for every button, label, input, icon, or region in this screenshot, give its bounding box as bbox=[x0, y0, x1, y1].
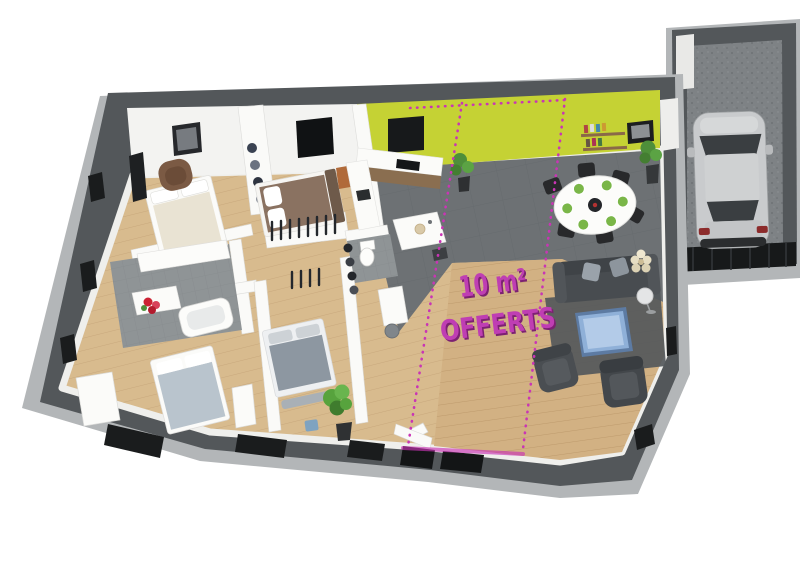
kitchen-sink-icon bbox=[356, 189, 371, 201]
car-hood bbox=[700, 116, 759, 134]
car-trunk bbox=[704, 220, 763, 240]
bed2-pillow-bottom bbox=[267, 207, 287, 229]
window-left-3-icon bbox=[60, 334, 77, 364]
car-roof bbox=[704, 153, 760, 203]
dining-picture-icon bbox=[627, 120, 654, 144]
garage-junction-wall-white bbox=[660, 98, 679, 151]
window-right-icon bbox=[666, 326, 677, 356]
car-top-view bbox=[686, 111, 777, 250]
car-mirror-left bbox=[687, 147, 695, 157]
car-taillight-right bbox=[757, 226, 768, 233]
armchair-right bbox=[599, 355, 649, 409]
floor-plan-svg: 10 m² 10 m² OFFERTS OFFERTS bbox=[0, 0, 800, 565]
floor-plan-stage: 10 m² 10 m² OFFERTS OFFERTS bbox=[0, 0, 800, 565]
picture-photo bbox=[176, 127, 198, 151]
car-taillight-left bbox=[699, 228, 710, 235]
dresser3 bbox=[232, 384, 256, 428]
sofa-pillow-1 bbox=[581, 262, 601, 282]
bedroom2-wall-panel-icon bbox=[296, 117, 334, 158]
window-left-2-icon bbox=[80, 260, 97, 292]
laundry-basket-icon bbox=[304, 419, 318, 432]
kitchen-hood-icon bbox=[388, 116, 424, 153]
bedroom1-wall-art bbox=[172, 122, 202, 156]
wardrobe3 bbox=[76, 372, 120, 426]
bed2-pillow-top bbox=[263, 185, 283, 207]
toilet-icon bbox=[360, 248, 374, 266]
island-faucet-icon bbox=[428, 220, 432, 224]
island-bowl-icon bbox=[415, 224, 425, 234]
car-rear-window bbox=[707, 200, 760, 222]
desk-chair-icon bbox=[385, 324, 399, 338]
car-mirror-right bbox=[765, 145, 773, 155]
window-left-1-icon bbox=[88, 172, 105, 202]
coffee-table bbox=[575, 307, 633, 357]
